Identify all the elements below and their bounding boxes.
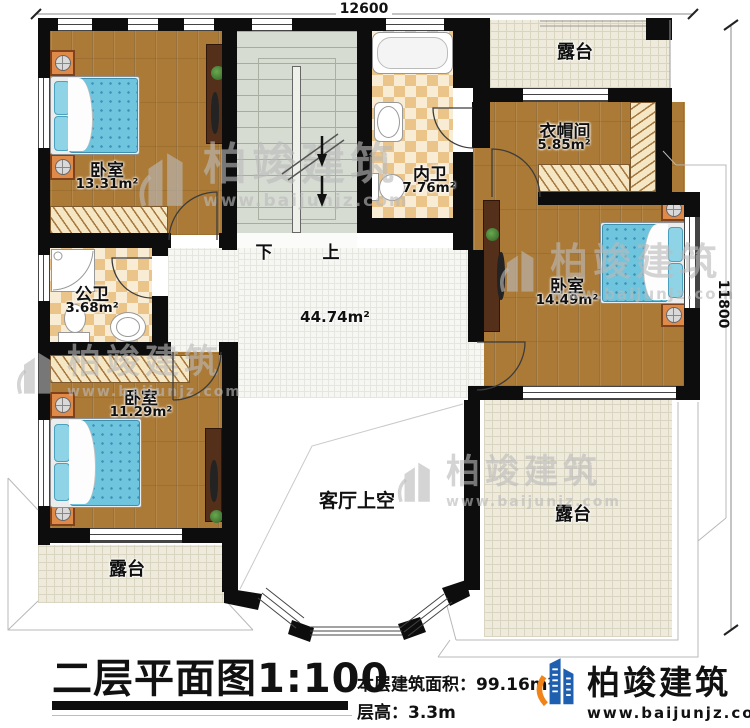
stair-rail: [292, 66, 301, 233]
room-area-bedroom-r: 14.49m²: [536, 292, 599, 308]
monitor-icon: [497, 252, 505, 300]
window: [523, 88, 608, 102]
wall-segment: [357, 218, 453, 233]
toilet-tank: [371, 173, 379, 201]
room-area-private-bath: 7.76m²: [402, 180, 455, 196]
plan-title: 二层平面图: [52, 656, 257, 702]
wall-segment: [38, 342, 171, 355]
void-label: 客厅上空: [319, 486, 395, 513]
toilet-bowl: [379, 174, 405, 201]
dimension-height: 11800: [715, 277, 731, 331]
brand-logo: 柏竣建筑 www.baijunjz.com: [533, 656, 750, 722]
nightstand: [50, 154, 75, 180]
window: [58, 18, 92, 31]
wall-segment: [453, 18, 473, 88]
sink-basin: [377, 106, 400, 138]
floor-height-stat: 层高：3.3m: [357, 698, 456, 723]
wall-segment: [38, 528, 90, 543]
wall-segment: [472, 102, 490, 148]
hall-floor: [168, 248, 238, 352]
monitor-icon: [211, 92, 219, 134]
brand-site: www.baijunjz.com: [587, 704, 750, 722]
floor-plan: 卧室 13.31m² 内卫 7.76m² 衣帽间 5.85m² 卧室 14.49…: [0, 0, 750, 728]
wardrobe: [50, 355, 190, 383]
stair-up-label: 上: [323, 238, 340, 263]
wardrobe: [50, 206, 168, 234]
nightstand: [50, 50, 75, 76]
wall-segment: [676, 386, 700, 400]
plant-icon: [486, 228, 499, 241]
pillow: [54, 424, 70, 462]
pillow: [54, 463, 70, 501]
window: [38, 78, 50, 148]
wall-segment: [608, 88, 672, 102]
wall-segment: [468, 386, 484, 400]
wall-segment: [182, 528, 227, 543]
wall-segment: [38, 233, 171, 248]
room-area-bedroom-bl: 11.29m²: [110, 404, 173, 420]
room-area-public-bath: 3.68m²: [65, 300, 118, 316]
window: [386, 18, 444, 31]
wall-segment: [538, 192, 672, 205]
lamp-icon: [55, 159, 71, 175]
floor-area-label: 本层建筑面积：: [357, 675, 476, 695]
room-area-cloakroom: 5.85m²: [537, 137, 590, 153]
stair-down-label: 下: [256, 238, 273, 263]
plan-title-row: 二层平面图1:100: [52, 646, 389, 704]
window: [684, 217, 700, 308]
nightstand: [661, 303, 686, 327]
floor-height-label: 层高：: [357, 703, 408, 723]
hall-floor-doorway: [468, 342, 484, 386]
wall-segment: [684, 205, 700, 217]
sink-basin: [116, 317, 140, 337]
window: [38, 255, 50, 301]
watermark-building-icon: [393, 455, 439, 507]
bathtub: [372, 32, 453, 74]
wardrobe-shelf: [538, 164, 630, 192]
floor-height-value: 3.3m: [408, 703, 456, 723]
wall-segment: [473, 18, 490, 102]
brand-building-icon: [533, 656, 579, 712]
wall-segment: [152, 248, 168, 256]
wall-segment: [222, 18, 237, 250]
terrace-top-label: 露台: [557, 38, 593, 64]
window: [90, 528, 182, 543]
wall-segment: [468, 250, 484, 342]
pillow: [668, 227, 683, 262]
terrace-br-label: 露台: [555, 500, 591, 526]
wall-segment: [484, 386, 523, 400]
bed-sheet: [643, 224, 668, 300]
nightstand: [50, 392, 75, 418]
window: [38, 420, 50, 506]
lamp-icon: [55, 397, 71, 413]
lamp-icon: [666, 307, 682, 323]
terrace-bl-label: 露台: [109, 555, 145, 581]
wall-segment: [656, 102, 672, 192]
window: [128, 18, 158, 31]
brand-name: 柏竣建筑: [587, 656, 750, 704]
window: [523, 386, 676, 400]
dimension-width: 12600: [336, 1, 392, 17]
monitor-icon: [210, 460, 218, 502]
window: [184, 18, 214, 31]
wall-segment: [222, 342, 238, 592]
wall-segment: [656, 192, 700, 205]
room-area-bedroom-tl: 13.31m²: [76, 176, 139, 192]
pillow: [668, 263, 683, 298]
wall-segment: [219, 233, 237, 248]
hall-area-label: 44.74m²: [300, 308, 370, 326]
wardrobe: [630, 102, 656, 192]
wall-segment: [464, 400, 480, 590]
wall-segment: [357, 18, 372, 233]
wall-segment: [646, 18, 672, 40]
title-underline-thin: [52, 715, 352, 716]
title-underline: [52, 701, 348, 710]
bathtub-basin: [377, 37, 448, 69]
floor-area-stat: 本层建筑面积：99.16m²: [357, 670, 555, 695]
window: [252, 18, 292, 31]
lamp-icon: [55, 55, 71, 71]
wall-segment: [453, 152, 473, 250]
